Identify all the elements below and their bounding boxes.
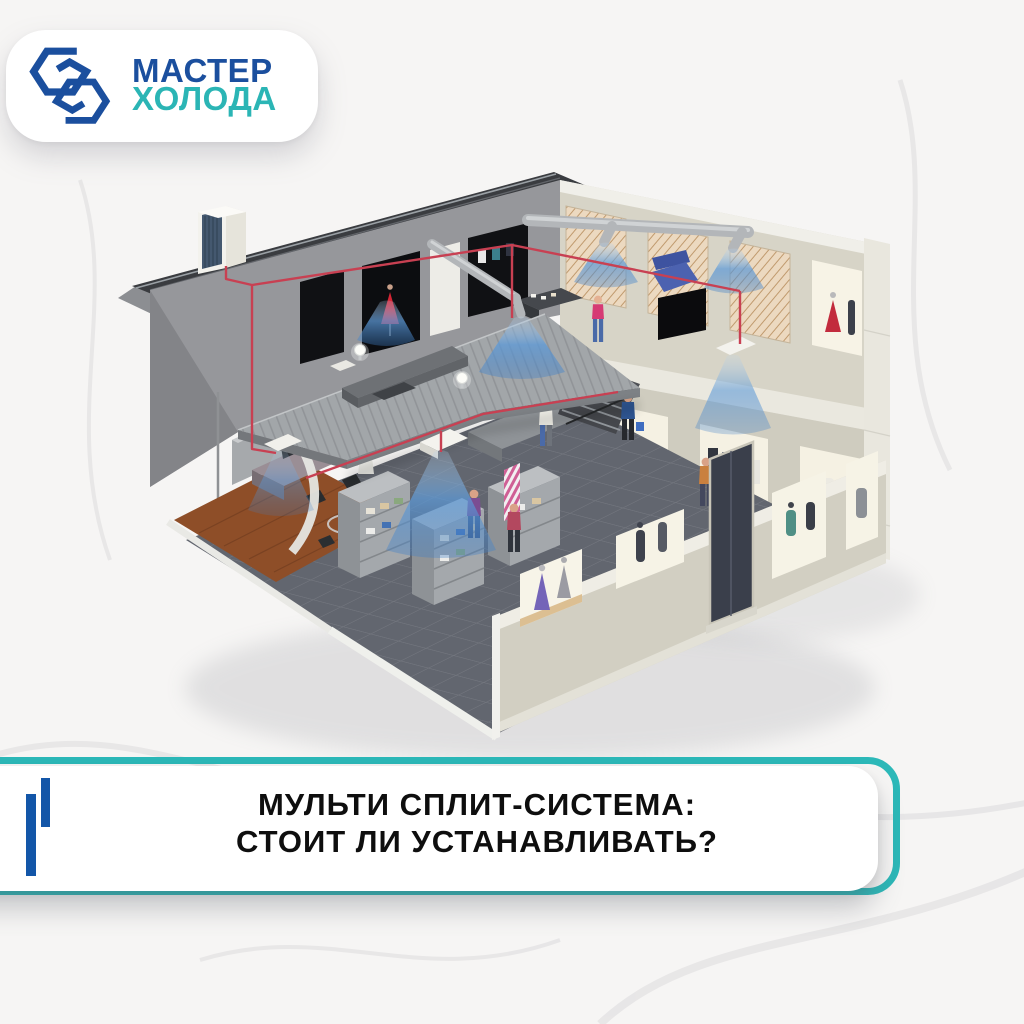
accent-bar — [41, 778, 50, 827]
mannequin — [806, 502, 815, 530]
hexagon-mark-teal — [57, 82, 107, 120]
mannequin — [786, 510, 796, 536]
mannequin — [848, 300, 855, 335]
accent-bar — [26, 794, 36, 876]
logo-badge: МАСТЕР ХОЛОДА — [6, 30, 318, 142]
social-post: МАСТЕР ХОЛОДА МУЛЬТИ СПЛИТ-СИСТЕМА: СТОИ… — [0, 0, 1024, 1024]
logo-wordmark: МАСТЕР ХОЛОДА — [132, 57, 277, 113]
entrance-door — [706, 442, 757, 634]
mannequin — [658, 522, 667, 552]
globe-lamp — [351, 343, 369, 361]
banner-card: МУЛЬТИ СПЛИТ-СИСТЕМА: СТОИТ ЛИ УСТАНАВЛИ… — [0, 766, 878, 891]
post-title: МУЛЬТИ СПЛИТ-СИСТЕМА: СТОИТ ЛИ УСТАНАВЛИ… — [86, 786, 868, 860]
title-line1: МУЛЬТИ СПЛИТ-СИСТЕМА: — [86, 786, 868, 823]
logo-icon — [20, 38, 124, 134]
display-board — [300, 270, 344, 364]
title-line2: СТОИТ ЛИ УСТАНАВЛИВАТЬ? — [86, 823, 868, 860]
cut-wall-edge — [492, 613, 500, 740]
globe-lamp — [453, 371, 471, 389]
logo-line2: ХОЛОДА — [132, 85, 277, 113]
mannequin — [636, 530, 645, 562]
display-window — [846, 451, 878, 550]
hexagon-mark-blue — [34, 51, 87, 92]
upper-display-window — [812, 260, 862, 356]
shopping-bag — [636, 422, 644, 431]
